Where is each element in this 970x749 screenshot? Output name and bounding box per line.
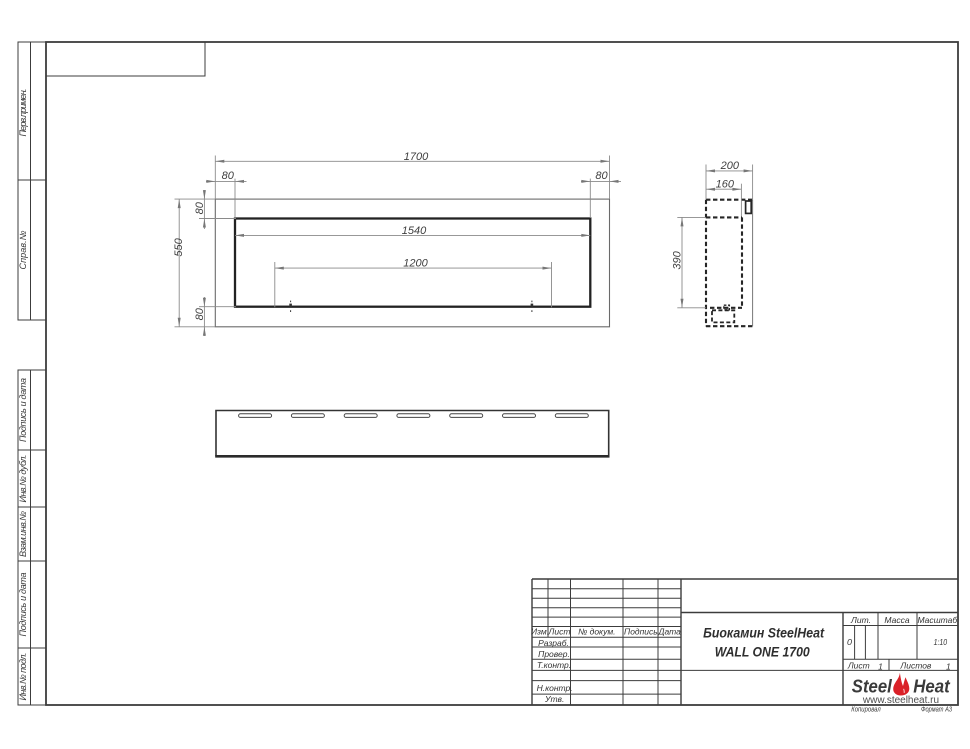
svg-text:550: 550 — [173, 237, 185, 256]
svg-text:1: 1 — [878, 661, 883, 671]
svg-text:1540: 1540 — [402, 225, 427, 237]
svg-text:Подпись и дата: Подпись и дата — [18, 378, 28, 442]
svg-text:1200: 1200 — [403, 257, 428, 269]
svg-text:Подпись: Подпись — [624, 627, 658, 637]
svg-text:80: 80 — [222, 170, 235, 182]
svg-text:Инв.№ дубл.: Инв.№ дубл. — [18, 455, 28, 503]
svg-text:Лит.: Лит. — [850, 615, 871, 625]
svg-text:Н.контр.: Н.контр. — [537, 683, 573, 693]
svg-text:Формат А3: Формат А3 — [921, 707, 952, 714]
svg-text:Heat: Heat — [913, 676, 950, 696]
svg-text:Биокамин SteelHeat: Биокамин SteelHeat — [703, 625, 825, 641]
svg-text:80: 80 — [595, 170, 608, 182]
svg-text:Провер.: Провер. — [538, 649, 570, 659]
svg-text:Копировал: Копировал — [851, 707, 881, 714]
svg-text:№ докум.: № докум. — [578, 627, 615, 637]
svg-text:200: 200 — [720, 160, 740, 172]
svg-text:Т.контр.: Т.контр. — [537, 660, 571, 670]
svg-text:www.steelheat.ru: www.steelheat.ru — [862, 695, 939, 706]
svg-text:Подпись и дата: Подпись и дата — [18, 573, 28, 637]
svg-text:Масса: Масса — [884, 615, 909, 625]
svg-text:Инв.№ подл.: Инв.№ подл. — [18, 653, 28, 701]
svg-text:WALL ONE 1700: WALL ONE 1700 — [715, 643, 810, 659]
svg-text:Разраб.: Разраб. — [538, 638, 569, 648]
svg-text:0: 0 — [847, 637, 852, 647]
svg-text:Изм.: Изм. — [531, 627, 549, 637]
svg-text:Лист: Лист — [847, 661, 870, 671]
svg-text:Масштаб: Масштаб — [917, 615, 958, 625]
svg-text:Листов: Листов — [899, 661, 932, 671]
svg-text:80: 80 — [194, 201, 206, 214]
svg-text:1: 1 — [946, 661, 951, 671]
svg-text:Справ.№: Справ.№ — [18, 230, 28, 269]
svg-text:1:10: 1:10 — [934, 637, 948, 647]
svg-text:Утв.: Утв. — [544, 694, 564, 704]
svg-text:Steel: Steel — [852, 676, 893, 696]
svg-text:Перв.примен.: Перв.примен. — [18, 89, 28, 137]
svg-text:Взам.инв.№: Взам.инв.№ — [18, 511, 28, 557]
svg-text:1700: 1700 — [404, 151, 429, 163]
svg-text:390: 390 — [672, 250, 684, 269]
svg-text:Дата: Дата — [657, 627, 681, 637]
svg-text:80: 80 — [194, 307, 206, 320]
svg-text:Лист: Лист — [548, 627, 571, 637]
svg-text:160: 160 — [716, 178, 735, 190]
